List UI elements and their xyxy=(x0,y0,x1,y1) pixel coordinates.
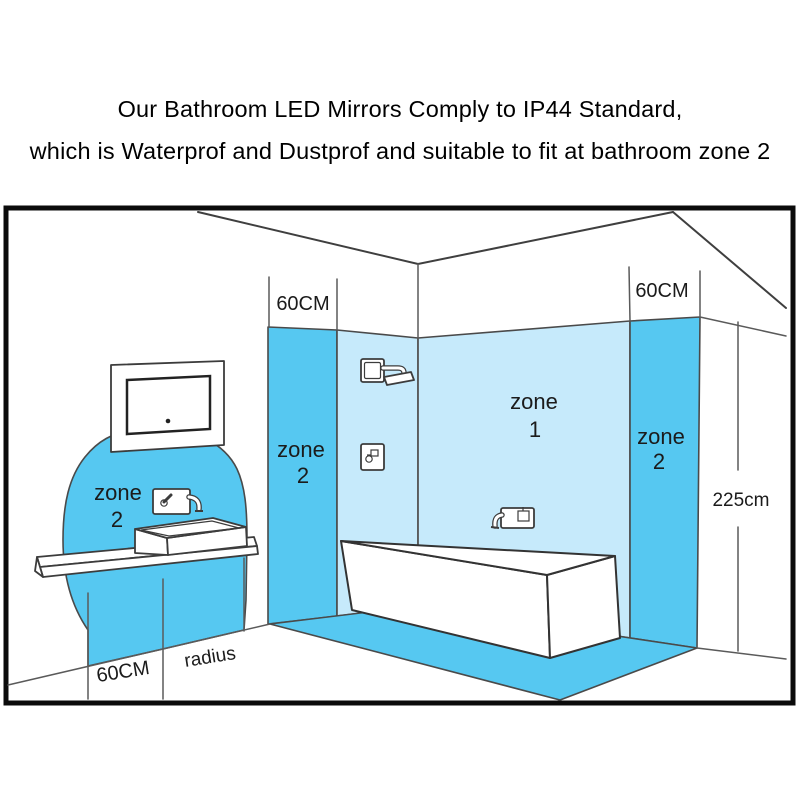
label-zone2-right-num: 2 xyxy=(653,449,665,474)
label-zone2-left-num: 2 xyxy=(297,463,309,488)
label-60cm-top-right: 60CM xyxy=(635,280,688,302)
zone-height-line-right-wall xyxy=(700,317,786,336)
label-zone2-basin-word: zone xyxy=(94,480,142,505)
label-zone2-left-word: zone xyxy=(277,437,325,462)
bathroom-zones-diagram: 60CM 60CM zone 2 zone 1 zone 2 zone 2 22… xyxy=(0,0,800,800)
label-zone1-word: zone xyxy=(510,389,558,414)
label-zone2-right-word: zone xyxy=(637,424,685,449)
product-infographic: Our Bathroom LED Mirrors Comply to IP44 … xyxy=(0,0,800,800)
bath-spout-tip xyxy=(491,527,499,528)
right-wall-floor-edge xyxy=(697,648,786,659)
shower-valve-icon xyxy=(361,444,384,470)
label-225cm: 225cm xyxy=(712,490,769,511)
measurement-tick xyxy=(629,267,630,321)
led-mirror xyxy=(111,361,224,452)
label-zone1-num: 1 xyxy=(529,417,541,442)
faucet-plate xyxy=(153,489,190,514)
ceiling-edge-lines xyxy=(198,212,673,264)
mirror-glass xyxy=(127,376,210,434)
touch-sensor-dot xyxy=(166,419,171,424)
label-zone2-basin-num: 2 xyxy=(111,507,123,532)
valve-plate xyxy=(361,444,384,470)
label-60cm-top-left: 60CM xyxy=(276,293,329,315)
right-wall-ceiling-edge xyxy=(673,212,786,308)
zone2-right-wall-strip xyxy=(630,317,700,648)
label-radius-floor: radius xyxy=(183,643,237,672)
